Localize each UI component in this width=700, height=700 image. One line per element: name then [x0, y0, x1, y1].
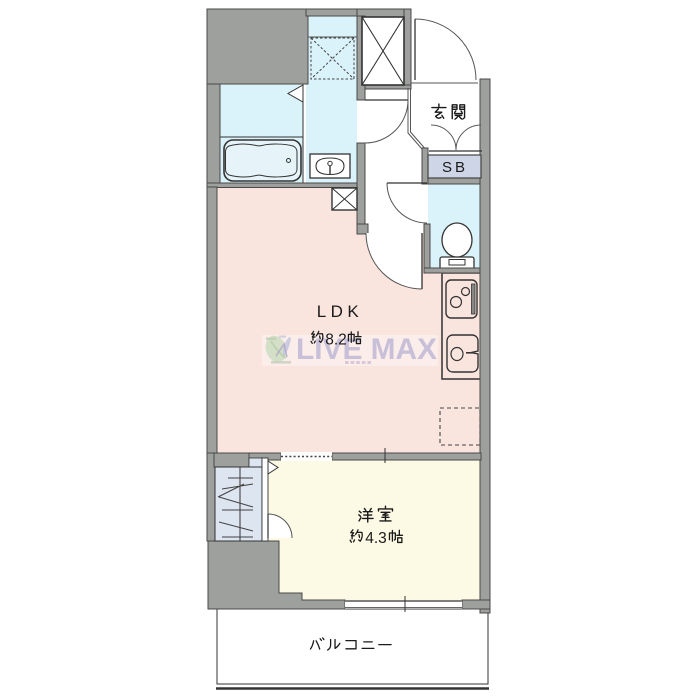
svg-text:LDK: LDK [317, 302, 364, 321]
svg-text:4.3: 4.3 [365, 530, 387, 547]
svg-text:SB: SB [442, 159, 468, 176]
svg-text:8.2: 8.2 [325, 332, 347, 349]
svg-text:LIVE MAX: LIVE MAX [296, 333, 437, 366]
